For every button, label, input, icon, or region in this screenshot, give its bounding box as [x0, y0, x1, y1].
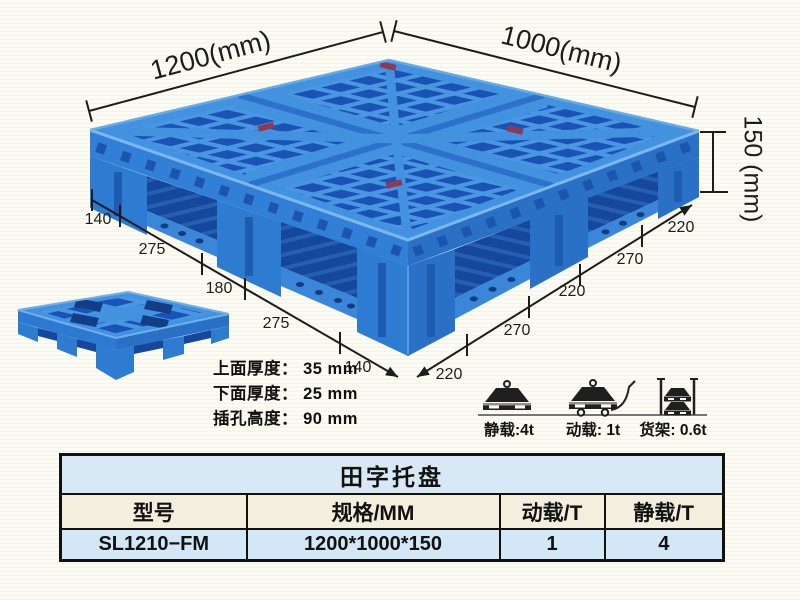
thickness-notes: 上面厚度： 35 mm 下面厚度： 25 mm 插孔高度： 90 mm: [213, 357, 403, 432]
small-pallet-photo: [10, 285, 240, 380]
right-seg-2: 220: [559, 283, 586, 300]
spec-table-title: 田字托盘: [61, 455, 724, 495]
left-seg-3: 275: [263, 315, 290, 332]
cell-spec: 1200*1000*150: [247, 529, 500, 561]
header-dynamic: 动载/T: [500, 494, 605, 529]
height-dimension-label: 150 (mm): [738, 116, 766, 223]
right-seg-4: 220: [668, 219, 695, 236]
right-seg-0: 220: [436, 366, 463, 383]
rack-load-icon: [657, 379, 698, 416]
left-seg-1: 275: [139, 241, 166, 258]
static-load-label: 静载:4t: [484, 420, 534, 439]
cell-static: 4: [605, 529, 724, 561]
left-seg-0: 140: [85, 211, 112, 228]
spec-table-data-row: SL1210−FM 1200*1000*150 1 4: [61, 529, 724, 561]
header-model: 型号: [61, 494, 247, 529]
width-dimension-label: 1200(mm): [147, 25, 274, 86]
pallet-spec-sheet: 1200(mm) 1000(mm) 150 (mm) 140 275 180 2…: [0, 0, 800, 600]
left-seg-2: 180: [206, 280, 233, 297]
cell-model: SL1210−FM: [61, 529, 247, 561]
load-ratings: 静载:4t 动载: 1t 货架: 0.6t: [478, 379, 707, 439]
spec-table: 田字托盘 型号 规格/MM 动载/T 静载/T SL1210−FM 1200*1…: [59, 453, 725, 562]
static-load-icon: [483, 381, 531, 410]
cell-dynamic: 1: [500, 529, 605, 561]
note-slot-height: 插孔高度： 90 mm: [213, 407, 403, 432]
right-seg-3: 270: [617, 251, 644, 268]
note-top-thickness: 上面厚度： 35 mm: [213, 357, 403, 382]
dynamic-load-icon: [569, 380, 635, 416]
depth-dimension-label: 1000(mm): [498, 20, 625, 79]
spec-table-header-row: 型号 规格/MM 动载/T 静载/T: [61, 494, 724, 529]
dynamic-load-label: 动载: 1t: [566, 421, 620, 439]
note-bottom-thickness: 下面厚度： 25 mm: [213, 382, 403, 407]
header-spec: 规格/MM: [247, 494, 500, 529]
rack-load-label: 货架: 0.6t: [639, 420, 706, 439]
spec-table-title-row: 田字托盘: [61, 455, 724, 495]
right-seg-1: 270: [504, 322, 531, 339]
header-static: 静载/T: [605, 494, 724, 529]
